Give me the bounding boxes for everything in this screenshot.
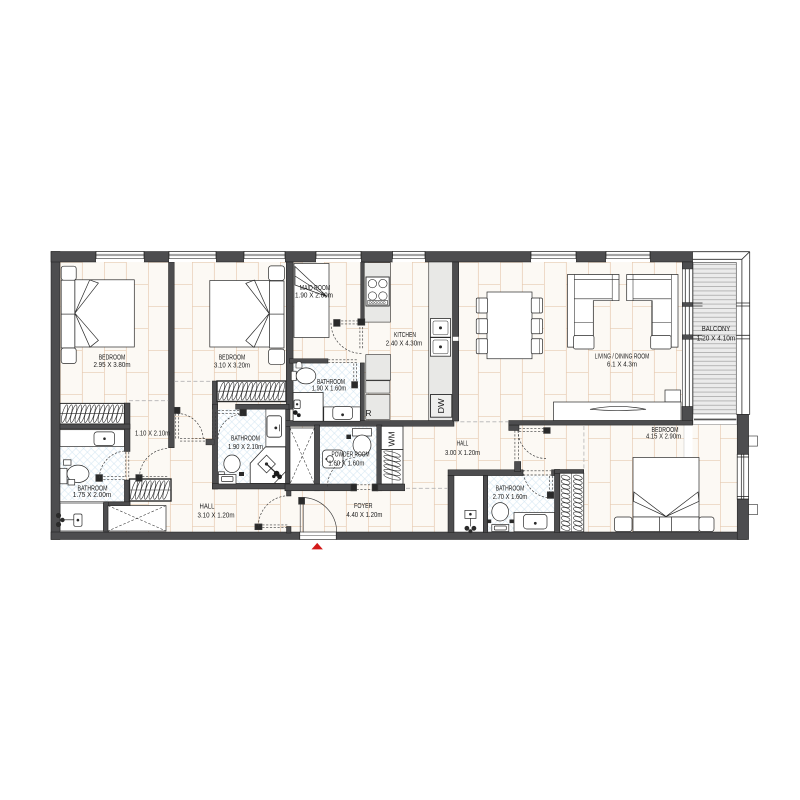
svg-text:1.10 X 2.10m: 1.10 X 2.10m bbox=[135, 429, 170, 438]
svg-text:4.40 X 1.20m: 4.40 X 1.20m bbox=[346, 510, 382, 519]
svg-text:1.75 X 2.00m: 1.75 X 2.00m bbox=[73, 490, 112, 499]
svg-text:POWDER ROOM: POWDER ROOM bbox=[332, 450, 370, 459]
svg-text:BATHROOM: BATHROOM bbox=[496, 483, 525, 492]
svg-text:1.60 X 1.60m: 1.60 X 1.60m bbox=[328, 458, 364, 467]
svg-text:1.20 X 4.10m: 1.20 X 4.10m bbox=[697, 333, 736, 342]
svg-text:2.95 X 3.80m: 2.95 X 3.80m bbox=[94, 360, 131, 369]
svg-text:2.70 X 1.60m: 2.70 X 1.60m bbox=[493, 492, 528, 501]
svg-text:BALCONY: BALCONY bbox=[702, 324, 731, 333]
svg-text:WM: WM bbox=[388, 432, 397, 447]
svg-text:4.15 X 2.90m: 4.15 X 2.90m bbox=[646, 432, 681, 441]
svg-text:3.10 X 3.20m: 3.10 X 3.20m bbox=[214, 360, 250, 369]
svg-text:2.40 X 4.30m: 2.40 X 4.30m bbox=[386, 339, 423, 348]
svg-text:FOYER: FOYER bbox=[354, 501, 373, 510]
svg-text:3.10 X 1.20m: 3.10 X 1.20m bbox=[198, 511, 235, 520]
svg-text:DW: DW bbox=[437, 398, 446, 414]
svg-text:1.90 X 1.60m: 1.90 X 1.60m bbox=[312, 383, 347, 392]
svg-text:1.90 X 2.10m: 1.90 X 2.10m bbox=[228, 442, 263, 451]
svg-text:3.00 X 1.20m: 3.00 X 1.20m bbox=[445, 448, 480, 457]
svg-text:R: R bbox=[366, 409, 372, 418]
svg-text:HALL: HALL bbox=[457, 439, 469, 448]
svg-text:1.90 X 2.60m: 1.90 X 2.60m bbox=[295, 291, 333, 300]
svg-text:HALL: HALL bbox=[200, 502, 215, 511]
svg-text:6.1 X 4.3m: 6.1 X 4.3m bbox=[607, 360, 637, 369]
